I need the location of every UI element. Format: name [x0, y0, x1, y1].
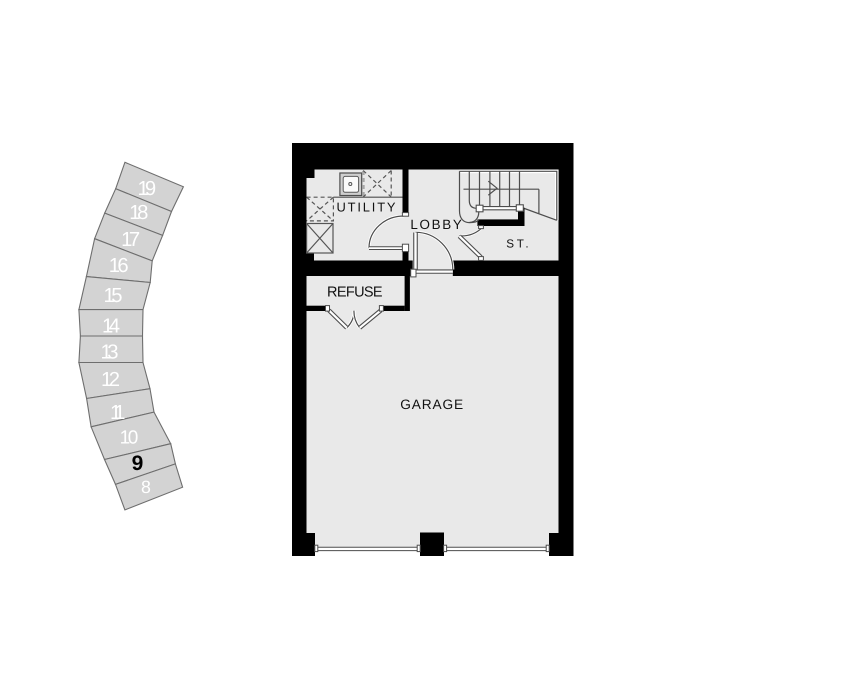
svg-text:GARAGE: GARAGE — [400, 397, 463, 412]
svg-text:ST.: ST. — [506, 238, 528, 251]
svg-text:16: 16 — [109, 255, 129, 277]
svg-text:18: 18 — [129, 202, 148, 224]
svg-text:15: 15 — [103, 285, 122, 307]
svg-text:8: 8 — [141, 477, 151, 497]
svg-text:19: 19 — [137, 178, 156, 200]
svg-text:10: 10 — [120, 428, 139, 449]
svg-text:11: 11 — [110, 402, 125, 424]
svg-text:12: 12 — [101, 369, 120, 391]
svg-text:UTILITY: UTILITY — [337, 199, 396, 214]
svg-text:13: 13 — [101, 342, 119, 364]
svg-text:17: 17 — [121, 229, 140, 251]
svg-text:REFUSE: REFUSE — [327, 285, 383, 301]
svg-text:14: 14 — [102, 315, 120, 337]
svg-text:9: 9 — [132, 452, 144, 475]
